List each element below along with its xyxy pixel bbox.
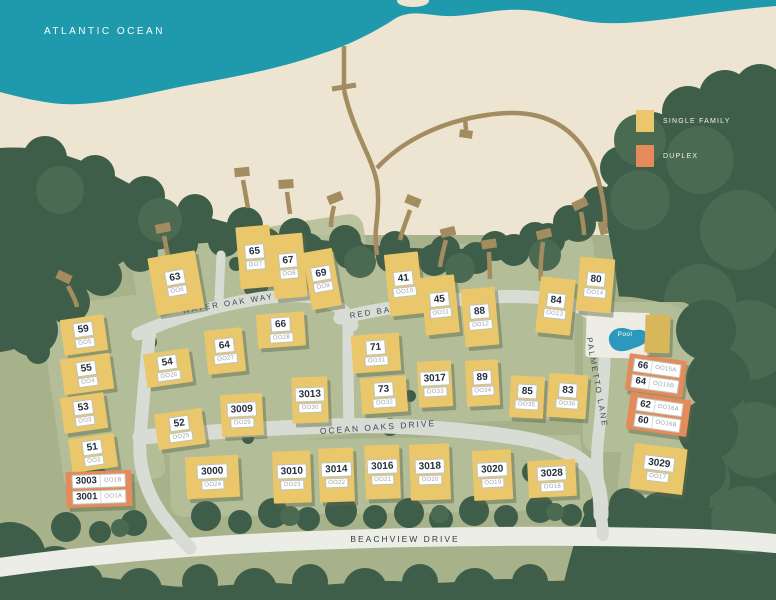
lot-code: OO33 xyxy=(424,386,448,397)
lot-number: 53 xyxy=(73,399,94,417)
lot-building-41[interactable]: 41OO10 xyxy=(384,251,424,316)
lot-number: 88 xyxy=(469,303,489,320)
lot-code: OO34 xyxy=(471,385,495,396)
duplex-unit-label: 3003OO1B xyxy=(71,473,125,489)
road-connector xyxy=(348,322,349,425)
unit-code: OO16A xyxy=(653,400,680,415)
lot-code: OO17 xyxy=(645,471,669,484)
lot-code: OO14 xyxy=(583,287,607,299)
unit-code: OO1A xyxy=(100,490,122,503)
lot-building-3010[interactable]: 3010OO23 xyxy=(272,450,312,503)
lot-building-3014[interactable]: 3014OO22 xyxy=(318,447,355,502)
lot-number: 59 xyxy=(73,321,94,339)
lot-code: OO32 xyxy=(373,397,397,409)
lot-code: OO3 xyxy=(75,415,96,428)
lot-number: 54 xyxy=(157,354,178,372)
lot-number: 41 xyxy=(393,270,414,287)
lot-code: OO8 xyxy=(279,268,299,280)
lot-number: 83 xyxy=(558,382,578,398)
lot-code: OO18 xyxy=(541,481,565,492)
map-legend: SINGLE FAMILY DUPLEX xyxy=(636,110,731,167)
lot-building-67[interactable]: 67OO8 xyxy=(269,233,307,300)
lot-building-3017[interactable]: 3017OO33 xyxy=(417,360,453,408)
lot-number: 3028 xyxy=(536,465,567,482)
lot-number: 66 xyxy=(271,316,291,332)
lot-number: 3000 xyxy=(197,463,228,480)
lot-code: OO13 xyxy=(543,308,567,320)
lot-building-52[interactable]: 52OO25 xyxy=(154,408,207,450)
lot-number: 3017 xyxy=(419,370,450,387)
lot-code: OO5 xyxy=(75,337,96,350)
lot-number: 3013 xyxy=(294,386,325,402)
lot-number: 80 xyxy=(586,271,606,288)
lot-building-53[interactable]: 53OO3 xyxy=(60,392,109,434)
lot-number: 85 xyxy=(517,384,537,400)
community-site-map: ATLANTIC OCEAN WATER OAK WAY RED BAY LAN… xyxy=(0,0,776,600)
unit-number: 66 xyxy=(637,359,649,372)
lot-number: 3020 xyxy=(477,461,508,478)
unit-number: 3001 xyxy=(76,491,98,504)
lot-code: OO28 xyxy=(270,332,294,344)
lot-building-3013[interactable]: 3013OO30 xyxy=(291,376,329,423)
duplex-unit-label: 3001OO1A xyxy=(72,489,126,505)
lot-code: OO6 xyxy=(167,284,188,297)
unit-code: OO1B xyxy=(100,474,122,487)
lot-building-55[interactable]: 55OO4 xyxy=(60,353,115,396)
lot-building-3018[interactable]: 3018OO20 xyxy=(409,443,451,500)
lot-number: 3009 xyxy=(226,401,257,418)
lot-number: 65 xyxy=(244,243,264,260)
lot-number: 71 xyxy=(366,339,386,355)
lot-code: OO21 xyxy=(371,475,395,486)
lot-code: OO36 xyxy=(555,398,579,410)
lot-code: OO9 xyxy=(313,280,334,293)
lot-building-66[interactable]: 66OO28 xyxy=(256,311,306,348)
lot-number: 51 xyxy=(82,439,103,457)
lot-code: OO11 xyxy=(429,307,453,319)
duplex-swatch xyxy=(636,145,654,167)
lot-code: OO25 xyxy=(169,430,193,443)
lot-building-88[interactable]: 88OO12 xyxy=(461,287,500,348)
lot-building-71[interactable]: 71OO31 xyxy=(351,332,402,373)
lot-code: OO29 xyxy=(231,417,255,428)
lot-code: OO30 xyxy=(299,403,323,414)
legend-item-single-family: SINGLE FAMILY xyxy=(636,110,731,132)
lot-code: OO20 xyxy=(419,475,443,486)
lot-number: 64 xyxy=(214,337,235,354)
lot-code: OO26 xyxy=(157,369,181,382)
lot-number: 45 xyxy=(429,291,450,308)
lot-building-64[interactable]: 64OO27 xyxy=(204,327,246,375)
legend-label: SINGLE FAMILY xyxy=(663,118,731,125)
lot-number: 52 xyxy=(169,415,190,433)
lot-code: OO19 xyxy=(481,477,505,488)
lot-number: 73 xyxy=(374,381,394,397)
lot-building-51[interactable]: 51OO2 xyxy=(68,433,118,473)
unit-number: 62 xyxy=(639,398,651,411)
lot-code: OO23 xyxy=(281,480,305,491)
legend-item-duplex: DUPLEX xyxy=(636,145,731,167)
lot-code: OO4 xyxy=(78,376,99,389)
unit-code: OO16B xyxy=(651,416,678,431)
lot-building-63[interactable]: 63OO6 xyxy=(147,250,204,315)
lot-building-89[interactable]: 89OO34 xyxy=(465,359,500,407)
lot-number: 3018 xyxy=(414,458,445,474)
legend-label: DUPLEX xyxy=(663,153,698,160)
lot-number: 84 xyxy=(546,292,567,309)
lot-code: OO7 xyxy=(246,259,266,271)
lot-building-45[interactable]: 45OO11 xyxy=(420,274,460,335)
lot-code: OO31 xyxy=(365,355,389,367)
lot-code: OO27 xyxy=(214,353,238,365)
lot-number: 67 xyxy=(278,252,298,269)
road-driveway xyxy=(219,255,221,300)
lot-code: OO2 xyxy=(84,455,105,468)
clubhouse-building xyxy=(644,315,670,354)
lot-code: OO22 xyxy=(325,478,349,489)
lot-code: OO10 xyxy=(393,286,417,298)
lot-building-80[interactable]: 80OO14 xyxy=(576,257,616,314)
lot-building-3029[interactable]: 3029OO17 xyxy=(629,443,687,495)
unit-code: OO15A xyxy=(650,361,677,376)
unit-number: 60 xyxy=(637,414,649,427)
lot-number: 55 xyxy=(76,360,97,378)
lot-building-73[interactable]: 73OO32 xyxy=(360,375,408,414)
lot-number: 89 xyxy=(472,370,492,386)
lot-number: 3014 xyxy=(321,461,352,477)
pool-area xyxy=(585,311,651,359)
lot-building-3009[interactable]: 3009OO29 xyxy=(220,393,264,437)
duplex-building-66-64[interactable]: 66OO15A64OO15B xyxy=(625,353,688,398)
single-family-swatch xyxy=(636,110,654,132)
lot-building-3028[interactable]: 3028OO18 xyxy=(527,459,577,498)
duplex-building-3003-3001[interactable]: 3003OO1B3001OO1A xyxy=(65,470,132,508)
lot-building-65[interactable]: 65OO7 xyxy=(235,225,274,290)
lot-building-3000[interactable]: 3000OO24 xyxy=(185,455,240,500)
lot-building-85[interactable]: 85OO35 xyxy=(509,375,545,419)
lot-code: OO12 xyxy=(469,319,493,331)
lot-building-54[interactable]: 54OO26 xyxy=(143,348,193,388)
lot-building-84[interactable]: 84OO13 xyxy=(535,276,576,335)
lot-building-3020[interactable]: 3020OO19 xyxy=(472,449,514,501)
lot-code: OO35 xyxy=(515,399,539,410)
lot-building-3016[interactable]: 3016OO21 xyxy=(364,444,401,499)
lot-building-59[interactable]: 59OO5 xyxy=(60,314,109,356)
lot-number: 3016 xyxy=(367,458,398,474)
lot-number: 3010 xyxy=(276,463,307,479)
unit-number: 3003 xyxy=(76,475,98,488)
unit-number: 64 xyxy=(635,375,647,388)
lot-building-83[interactable]: 83OO36 xyxy=(547,373,589,420)
unit-code: OO15B xyxy=(648,377,675,392)
lot-code: OO24 xyxy=(201,479,225,490)
